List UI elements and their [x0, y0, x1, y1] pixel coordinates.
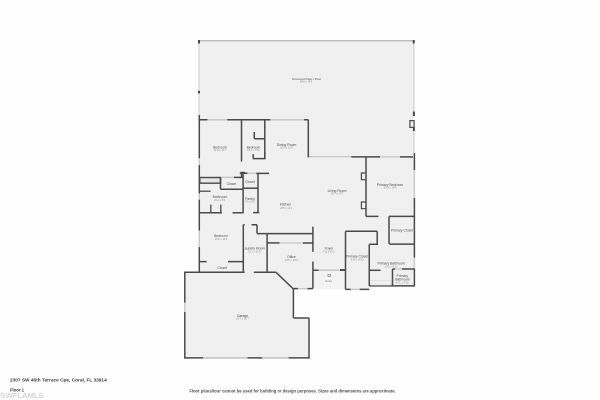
svg-text:Entry: Entry — [325, 279, 332, 283]
svg-text:SWFLAMLS: SWFLAMLS — [1, 391, 44, 400]
svg-text:Floor plans/tour cannot be use: Floor plans/tour cannot be used for buil… — [189, 388, 395, 393]
svg-text:Closet: Closet — [227, 182, 237, 186]
svg-text:40'9 x 19'4: 40'9 x 19'4 — [300, 80, 313, 84]
svg-text:2307 SW 45th Terrace Cpe, Cora: 2307 SW 45th Terrace Cpe, Coral, FL 3391… — [10, 378, 107, 384]
svg-text:5'11 x 11'0: 5'11 x 11'0 — [248, 249, 261, 253]
svg-text:20'7 x 20'7: 20'7 x 20'7 — [236, 317, 249, 321]
svg-text:10'5 x 11'0: 10'5 x 11'0 — [215, 237, 228, 241]
svg-text:Closet: Closet — [245, 180, 255, 184]
svg-text:10'1 x 9'10: 10'1 x 9'10 — [385, 264, 398, 268]
svg-text:13'5 x 16'0: 13'5 x 16'0 — [384, 186, 397, 190]
svg-text:7'11 x 6'11: 7'11 x 6'11 — [322, 249, 335, 253]
svg-text:Closet: Closet — [217, 266, 227, 270]
svg-text:Primary Closet: Primary Closet — [391, 229, 413, 233]
svg-text:4'11 x 8'1: 4'11 x 8'1 — [214, 198, 226, 202]
svg-text:10'1 x 11'6: 10'1 x 11'6 — [247, 148, 260, 152]
svg-text:15'7 x 17'7: 15'7 x 17'7 — [331, 192, 344, 196]
svg-text:10'6 x 10'0: 10'6 x 10'0 — [285, 258, 298, 262]
svg-text:10'5 x 11'6: 10'5 x 11'6 — [280, 146, 293, 150]
svg-text:3'6 x 5'6: 3'6 x 5'6 — [245, 200, 255, 204]
svg-text:10'5 x 13'1: 10'5 x 13'1 — [279, 206, 292, 210]
svg-text:4'11 x 4'10: 4'11 x 4'10 — [396, 281, 409, 285]
svg-text:11'6 x 11'7: 11'6 x 11'7 — [214, 148, 227, 152]
svg-text:4'10 x 9'10: 4'10 x 9'10 — [351, 258, 364, 262]
